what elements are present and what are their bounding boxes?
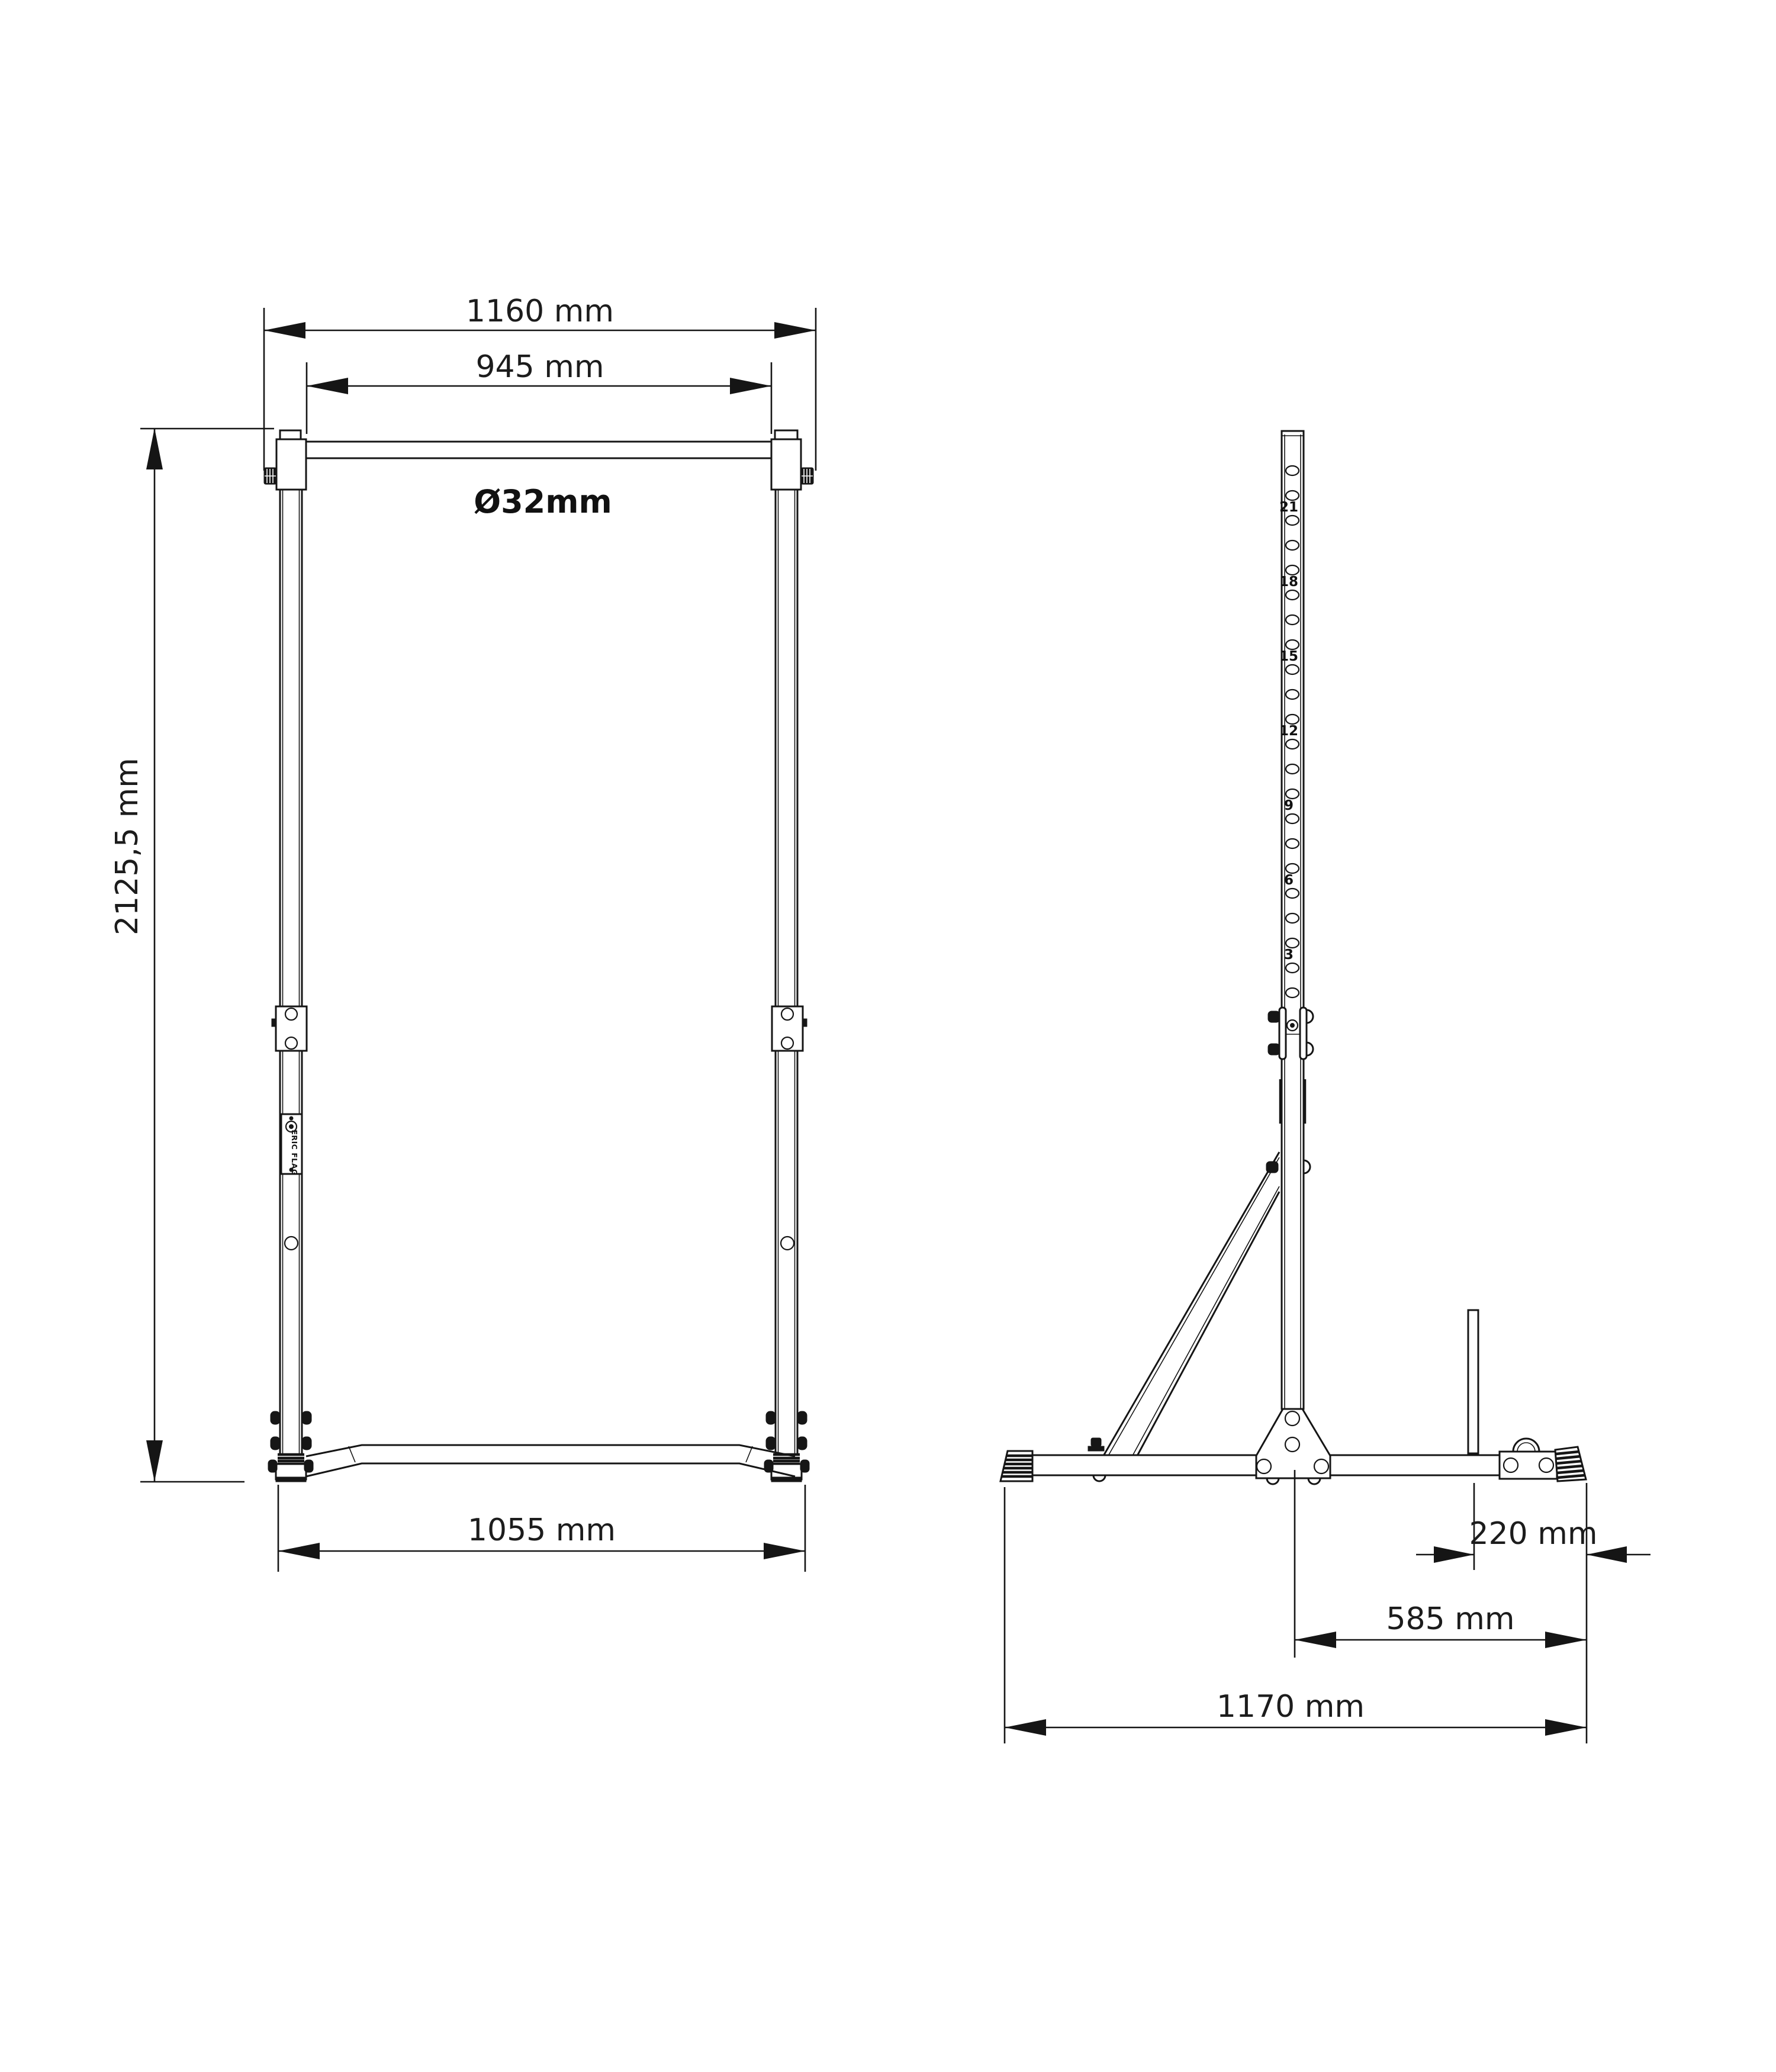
hole	[1286, 665, 1299, 674]
dim-inner-width: 945 mm	[307, 349, 771, 434]
under-bolt	[1308, 1478, 1320, 1484]
hole	[1286, 739, 1299, 749]
bar-end-stub	[775, 430, 797, 439]
hole	[1286, 640, 1299, 649]
arrowhead-left	[1434, 1546, 1474, 1563]
brace-edge	[1137, 1192, 1279, 1456]
hole	[1286, 938, 1299, 948]
under-bolt	[1267, 1478, 1279, 1484]
hole	[1286, 516, 1299, 525]
mid-joint-bracket	[772, 1006, 807, 1051]
bolt	[797, 1437, 807, 1450]
bracket-tab	[272, 1019, 276, 1027]
gusset-hole	[1285, 1411, 1299, 1426]
hole-label: 21	[1279, 500, 1298, 515]
bolt	[271, 1411, 280, 1424]
clamp-bolt	[1268, 1044, 1280, 1055]
hole-label: 18	[1279, 574, 1298, 590]
arrowhead-left	[307, 378, 348, 394]
technical-drawing-page: 1160 mm 945 mm Ø32mm 2125,5 mm	[0, 0, 1776, 2072]
crossbar-bottom-edge	[306, 1463, 795, 1476]
bolt	[304, 1460, 313, 1472]
hole-label: 9	[1284, 798, 1294, 813]
mid-joint-bracket	[272, 1006, 307, 1051]
arrowhead-right	[1545, 1632, 1587, 1648]
adjustment-knob	[264, 468, 276, 484]
gusset-hole	[1314, 1459, 1328, 1473]
arrowhead-left	[1295, 1632, 1336, 1648]
brace-edge-inner	[1108, 1157, 1279, 1456]
diagonal-brace	[1103, 1152, 1310, 1456]
hole	[1286, 889, 1299, 898]
hole	[1286, 466, 1299, 475]
arrowhead-right	[764, 1543, 805, 1559]
foot-sole	[276, 1477, 306, 1482]
arrowhead-left	[278, 1543, 320, 1559]
hole-label: 15	[1279, 649, 1298, 664]
bar-diameter-label: Ø32mm	[474, 483, 612, 520]
arrowhead-right	[774, 322, 816, 339]
clamp-bolt	[1268, 1011, 1280, 1022]
dim-base-depth-label: 1170 mm	[1217, 1689, 1365, 1724]
hole	[1286, 913, 1299, 923]
dim-center-to-rear: 585 mm	[1295, 1470, 1587, 1658]
pullup-rack-technical-drawing: 1160 mm 945 mm Ø32mm 2125,5 mm	[0, 0, 1776, 2072]
gusset-hole	[1257, 1459, 1271, 1473]
hole	[1286, 590, 1299, 600]
bracket-tab	[803, 1019, 807, 1027]
crossbar-bend-seam	[349, 1446, 355, 1462]
bottom-crossbar	[306, 1445, 795, 1476]
bolt	[766, 1411, 776, 1424]
dim-base-width: 1055 mm	[278, 1485, 805, 1572]
clamp-pin-center	[1291, 1024, 1295, 1028]
hole	[1286, 789, 1299, 799]
bolt	[797, 1411, 807, 1424]
hole	[1286, 839, 1299, 848]
base-bolt-washer	[1088, 1446, 1104, 1451]
dim-height-label: 2125,5 mm	[110, 758, 145, 935]
bracket-hole	[285, 1008, 297, 1020]
dim-base-width-label: 1055 mm	[468, 1513, 616, 1548]
hole	[1286, 864, 1299, 873]
bracket-hole	[285, 1037, 297, 1049]
bolt	[302, 1437, 311, 1450]
bolt	[268, 1460, 277, 1472]
dim-inner-width-label: 945 mm	[475, 349, 604, 385]
adjustment-knob	[801, 468, 813, 484]
hole	[1286, 814, 1299, 823]
brand-logo-dot	[289, 1125, 294, 1129]
hook-arc-inner	[1517, 1443, 1535, 1452]
dome-nut	[1307, 1043, 1313, 1056]
bar-end-stub	[280, 430, 301, 439]
bolt	[302, 1411, 311, 1424]
brace-bolt	[1266, 1162, 1278, 1173]
under-bolt	[1093, 1475, 1105, 1481]
front-view: 1160 mm 945 mm Ø32mm 2125,5 mm	[110, 294, 816, 1572]
arrowhead-left	[1005, 1719, 1046, 1736]
dim-height: 2125,5 mm	[110, 428, 274, 1482]
gusset-hole	[1285, 1437, 1299, 1452]
arrowhead-right	[1545, 1719, 1587, 1736]
hole	[1286, 988, 1299, 998]
plate-rivet	[289, 1117, 293, 1120]
clamp-plate	[1279, 1008, 1286, 1059]
hole	[1286, 690, 1299, 699]
hole	[1286, 615, 1299, 625]
arrowhead-left	[264, 322, 305, 339]
hole	[1286, 764, 1299, 774]
weight-plate-rod	[1468, 1310, 1478, 1453]
crossbar-bend-seam	[746, 1446, 752, 1462]
right-post	[764, 430, 813, 1482]
foot-sole	[771, 1477, 802, 1482]
arrowhead-top	[146, 428, 163, 469]
bolt	[271, 1437, 280, 1450]
arrowhead-bottom	[146, 1440, 163, 1482]
dim-center-to-rear-label: 585 mm	[1386, 1601, 1514, 1637]
bracket-hole	[781, 1008, 793, 1020]
dome-nut	[1304, 1160, 1310, 1173]
side-view: 21 18 15 12 9 6 3	[1000, 431, 1650, 1743]
post-hole	[781, 1237, 794, 1250]
hole-label: 6	[1284, 873, 1294, 888]
brace-edge	[1103, 1152, 1279, 1456]
dim-top-width-label: 1160 mm	[466, 294, 614, 329]
top-bracket	[771, 439, 801, 490]
dim-rod-to-rear-label: 220 mm	[1469, 1516, 1597, 1552]
brace-edge-inner	[1132, 1186, 1279, 1456]
top-bracket	[276, 439, 306, 490]
post-hole	[285, 1237, 298, 1250]
hole-label: 12	[1279, 723, 1298, 739]
right-foot-cap	[1555, 1447, 1586, 1481]
crossbar-top-edge	[306, 1445, 795, 1456]
end-piece-hole	[1504, 1458, 1518, 1472]
hole	[1286, 963, 1299, 973]
hole	[1286, 491, 1299, 500]
brand-plate: ERIC FLAG	[281, 1114, 302, 1176]
pullup-bar	[306, 442, 771, 458]
hole	[1286, 540, 1299, 550]
left-foot-cap	[1000, 1451, 1032, 1481]
arrowhead-right	[730, 378, 771, 394]
upright-column: 21 18 15 12 9 6 3	[1279, 431, 1305, 1409]
bolt	[766, 1437, 776, 1450]
hole-label: 3	[1284, 947, 1294, 963]
bracket-hole	[781, 1037, 793, 1049]
end-piece-hole	[1539, 1458, 1553, 1472]
dome-nut	[1307, 1010, 1313, 1023]
hole	[1286, 715, 1299, 724]
gusset-plate	[1256, 1409, 1330, 1484]
brand-plate-label: ERIC FLAG	[290, 1130, 299, 1175]
hole	[1286, 565, 1299, 575]
clamp-plate	[1300, 1008, 1307, 1059]
bolt	[800, 1460, 809, 1472]
foot-assembly	[268, 1411, 313, 1482]
left-post: ERIC FLAG	[264, 430, 313, 1482]
base-bolt-head	[1091, 1438, 1101, 1446]
